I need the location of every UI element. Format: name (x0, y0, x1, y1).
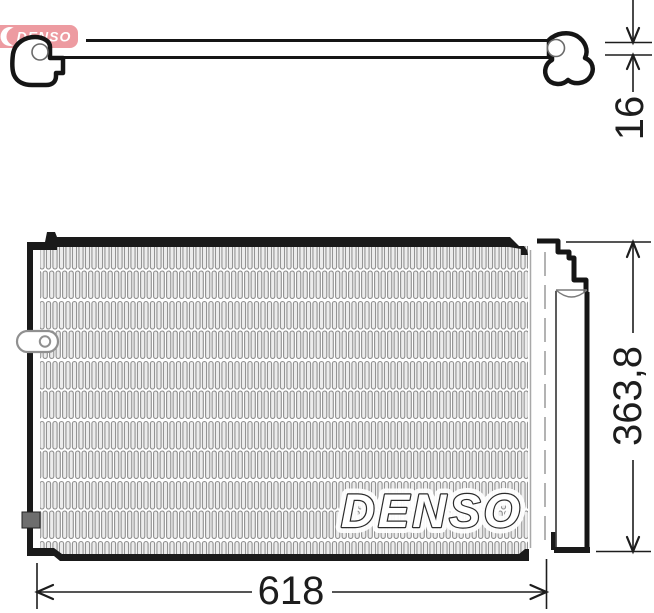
right-port-hole (548, 40, 565, 57)
height-value: 363,8 (606, 346, 650, 446)
bracket-body (17, 331, 58, 352)
top-profile-view (12, 33, 592, 85)
condenser-technical-drawing: DENSO 16 (0, 0, 654, 613)
thickness-value: 16 (608, 96, 652, 141)
dimension-width: 618 (37, 559, 547, 613)
left-side-plate (27, 246, 33, 554)
front-view: DENSO DENSO (17, 232, 590, 561)
width-value: 618 (258, 569, 325, 613)
drawing-svg: DENSO 16 (0, 0, 654, 613)
dimension-height: 363,8 (566, 242, 651, 552)
dimension-thickness: 16 (605, 0, 652, 140)
receiver-drier (551, 290, 590, 553)
left-port-hole (32, 44, 48, 60)
mounting-bracket (17, 331, 58, 352)
bracket-hole (40, 336, 50, 346)
drier-bottom-tick (551, 532, 556, 550)
denso-watermark: DENSO DENSO (341, 484, 523, 537)
drier-cap-curve (556, 290, 587, 297)
bottom-left-block (22, 512, 40, 528)
drier-bottom-cap (554, 547, 590, 553)
watermark-text: DENSO (341, 484, 523, 537)
